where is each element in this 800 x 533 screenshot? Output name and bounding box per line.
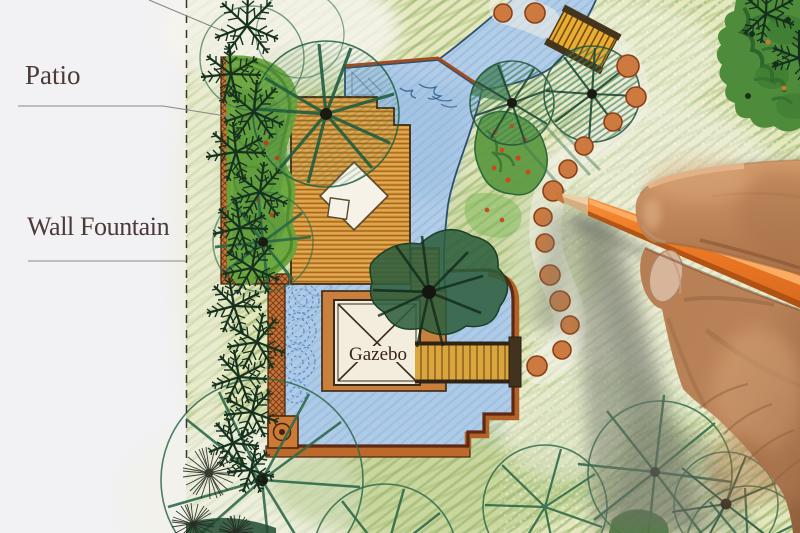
svg-text:Wall Fountain: Wall Fountain — [27, 212, 170, 241]
svg-text:Gazebo: Gazebo — [349, 344, 407, 365]
svg-text:Patio: Patio — [25, 60, 81, 90]
